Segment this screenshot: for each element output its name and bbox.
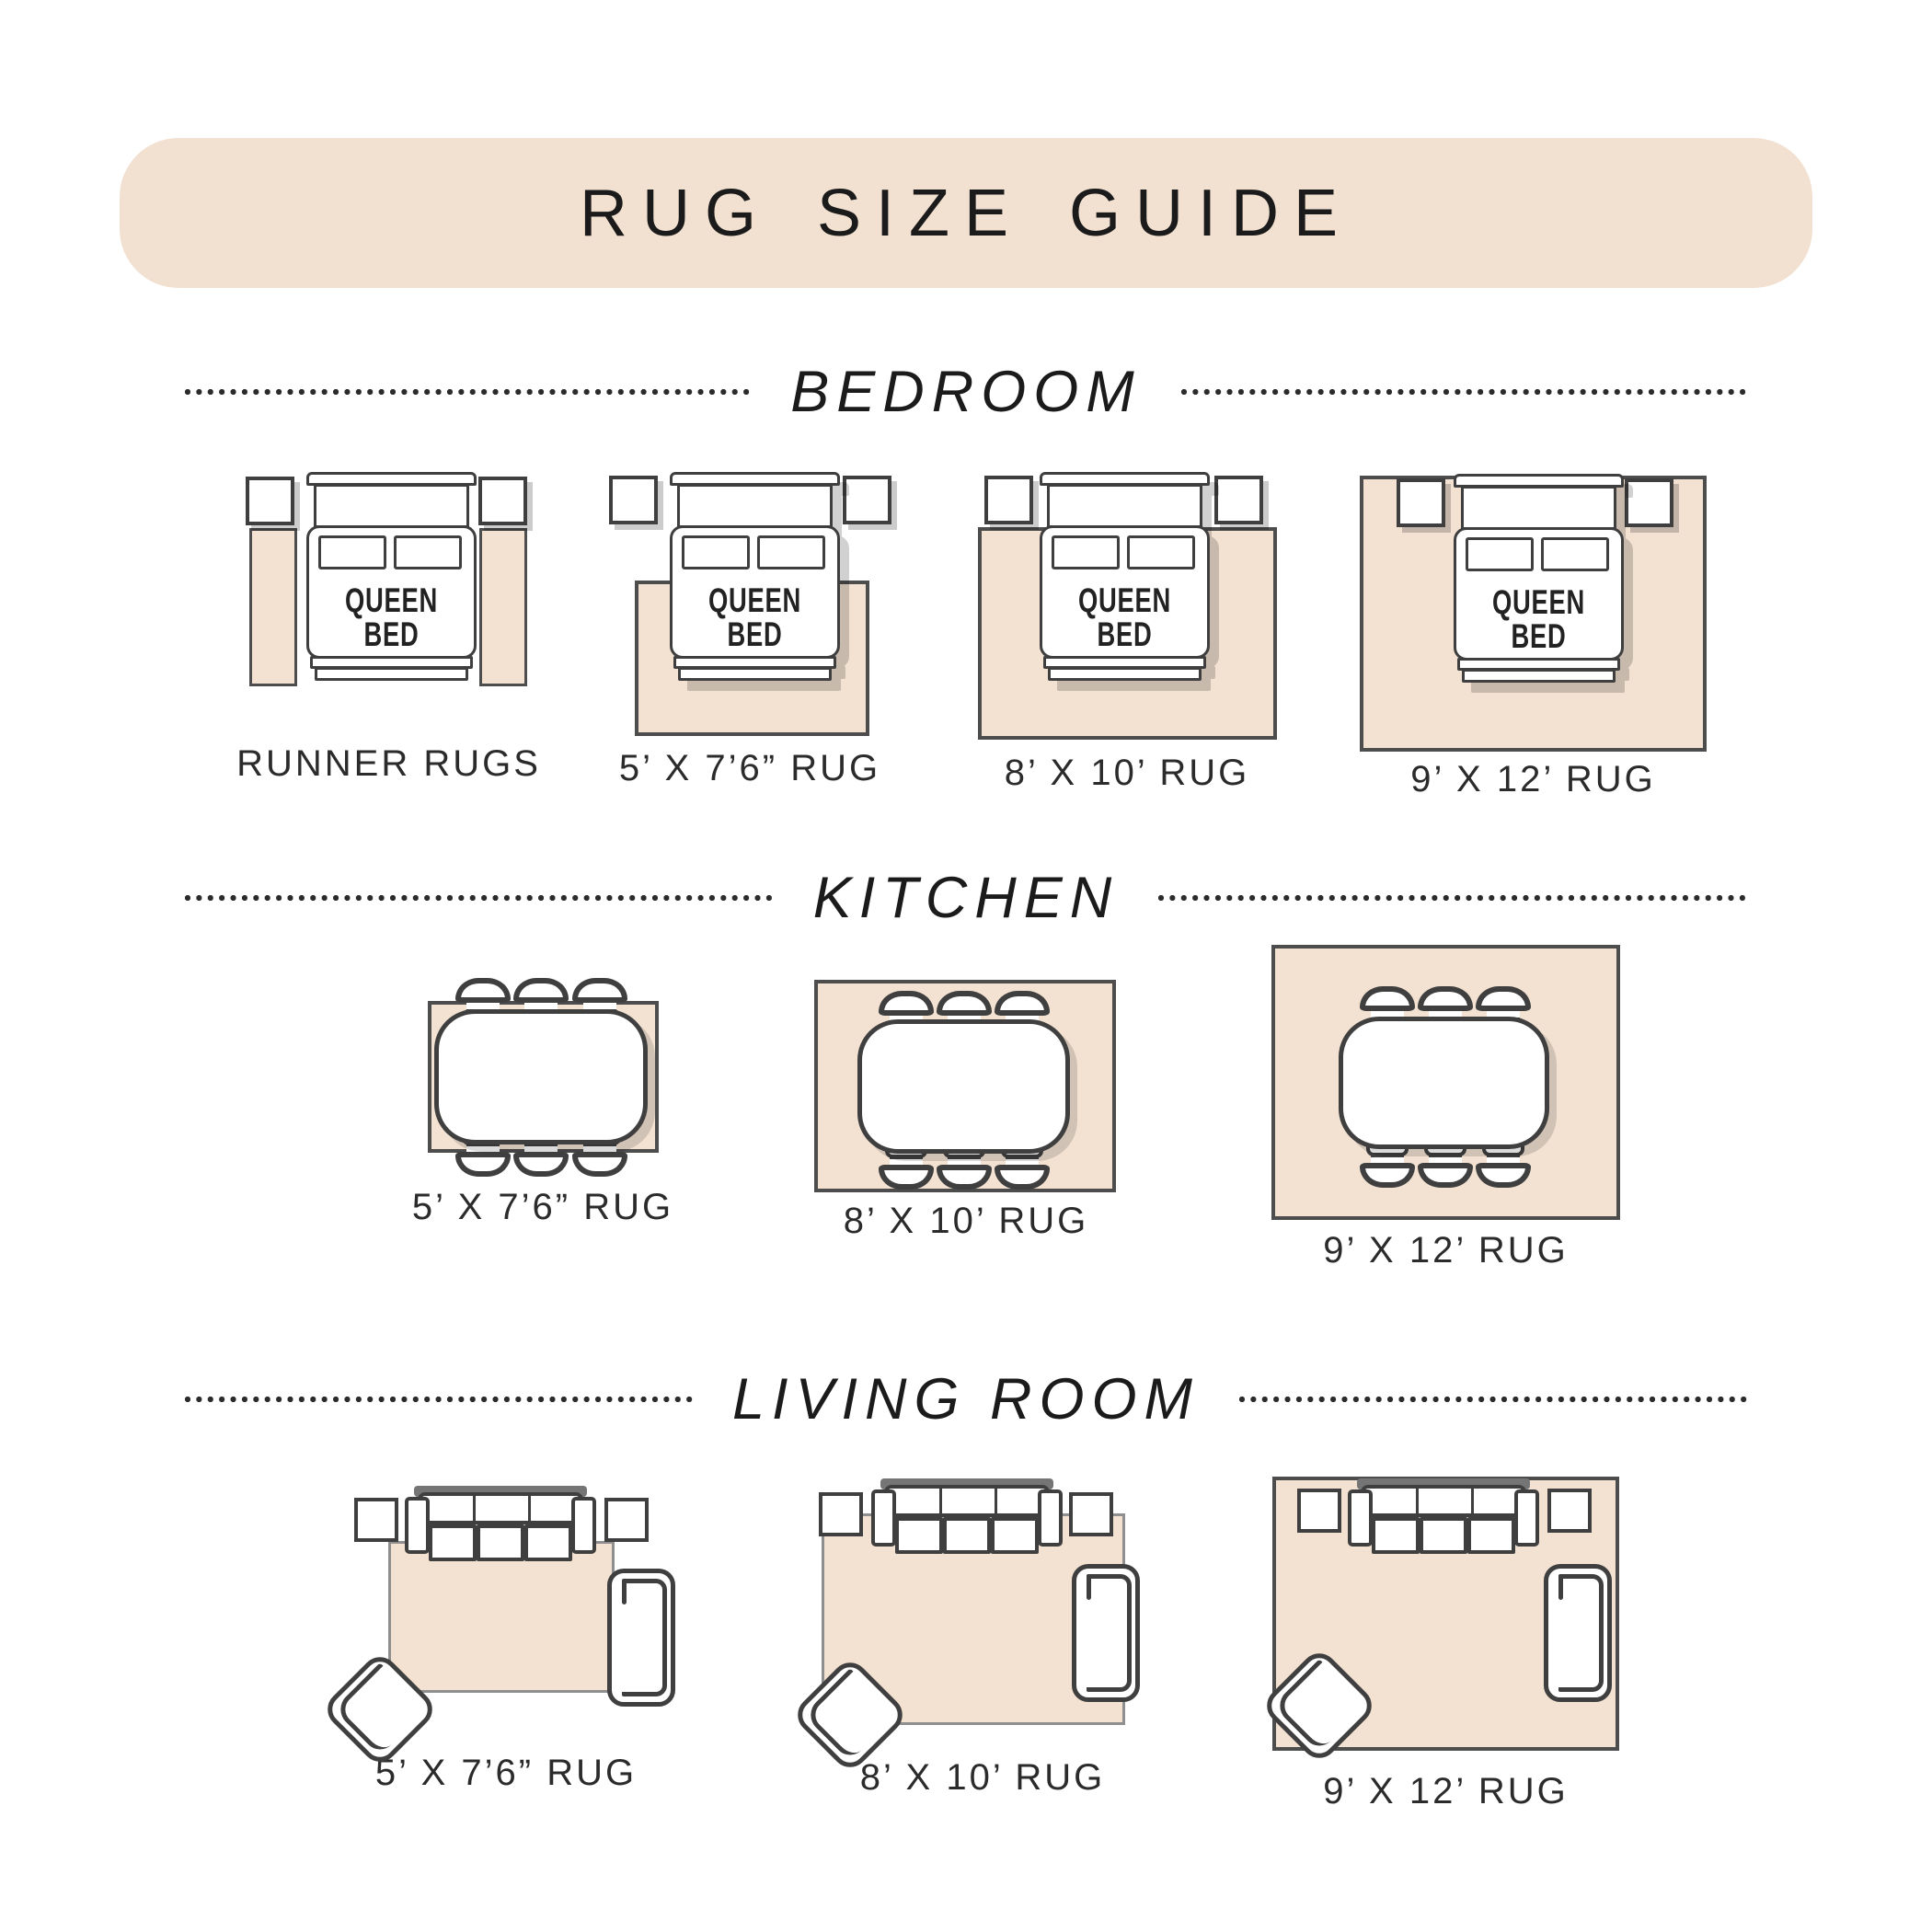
bed-pillow-left <box>682 535 750 569</box>
side-table-left <box>354 1498 398 1542</box>
bedroom-section-header: BEDROOM <box>184 359 1748 425</box>
sofa-cushion <box>429 1524 477 1561</box>
bed-mattress-top <box>1047 484 1202 528</box>
sofa-arm-left <box>871 1489 896 1547</box>
dotted-divider-right <box>1157 894 1748 902</box>
bed-duvet: QUEEN BED <box>1454 527 1624 661</box>
living-room-heading: LIVING ROOM <box>732 1366 1200 1432</box>
dining-table <box>857 1019 1070 1154</box>
bedroom-runner-rugs-diagram: QUEEN BED RUNNER RUGS <box>230 472 547 785</box>
bed-pillow-left <box>1052 535 1120 569</box>
bed-label: QUEEN BED <box>1478 585 1599 653</box>
dining-table <box>434 1009 648 1144</box>
sofa <box>1348 1478 1539 1554</box>
kitchen-5x76-diagram: 5’ X 7’6” RUG <box>414 971 672 1228</box>
bed-duvet: QUEEN BED <box>670 525 840 659</box>
lounge-chair-back <box>1558 1574 1604 1692</box>
diagram-label: 5’ X 7’6” RUG <box>377 1187 708 1228</box>
rug-5x76 <box>388 1541 615 1693</box>
bedroom-8x10-diagram: QUEEN BED 8’ X 10’ RUG <box>975 472 1279 794</box>
chair-back-icon <box>513 1152 569 1177</box>
chair-back-icon <box>513 978 569 1003</box>
lounge-chair-back-end <box>1558 1574 1563 1600</box>
bed-pillow-right <box>1127 535 1195 569</box>
living-room-9x12-diagram: 9’ X 12’ RUG <box>1272 1472 1619 1812</box>
page-title: RUG SIZE GUIDE <box>580 176 1352 251</box>
bed-pillow-left <box>318 535 386 569</box>
chair-back-icon <box>937 1165 992 1190</box>
living-room-8x10-diagram: 8’ X 10’ RUG <box>808 1472 1157 1799</box>
queen-bed: QUEEN BED <box>670 472 840 681</box>
bed-mattress-top <box>1461 486 1616 530</box>
bedroom-heading: BEDROOM <box>790 359 1142 425</box>
chair-back-icon <box>1476 1163 1531 1188</box>
sofa-back-divider <box>528 1496 531 1521</box>
bed-foot-band <box>1462 669 1616 683</box>
chair-back-icon <box>995 1165 1050 1190</box>
bed-mattress-top <box>677 484 833 528</box>
diagram-label: 8’ X 10’ RUG <box>938 753 1316 794</box>
kitchen-9x12-diagram: 9’ X 12’ RUG <box>1271 945 1620 1271</box>
sofa-back-divider <box>473 1496 476 1521</box>
sofa-back <box>418 1492 583 1524</box>
chair-back-icon <box>1360 986 1415 1011</box>
lounge-chair <box>1072 1564 1140 1702</box>
sofa-back <box>1361 1485 1526 1517</box>
chair-back-icon <box>1360 1163 1415 1188</box>
chair-back-icon <box>879 991 934 1016</box>
bed-label: QUEEN BED <box>694 583 815 651</box>
diagram-label: 9’ X 12’ RUG <box>1323 759 1743 800</box>
sofa-arm-right <box>1038 1489 1063 1547</box>
chair-back-icon <box>455 1152 511 1177</box>
side-table-left <box>1297 1489 1341 1533</box>
diagram-label: 5’ X 7’6” RUG <box>294 1753 718 1794</box>
nightstand-right <box>843 476 891 524</box>
bed-duvet: QUEEN BED <box>306 525 477 659</box>
bed-foot-band <box>678 667 832 681</box>
nightstand-left <box>1397 478 1445 527</box>
sofa-back <box>884 1485 1050 1517</box>
lounge-chair <box>1544 1564 1612 1702</box>
queen-bed: QUEEN BED <box>1454 474 1624 683</box>
living-room-section-header: LIVING ROOM <box>184 1366 1748 1432</box>
sofa <box>871 1478 1063 1554</box>
chair-back-icon <box>572 1152 627 1177</box>
bed-label: QUEEN BED <box>330 583 452 651</box>
living-room-5x76-diagram: 5’ X 7’6” RUG <box>331 1472 681 1794</box>
bed-pillow-right <box>394 535 462 569</box>
sofa-arm-right <box>1514 1489 1539 1547</box>
sofa-cushion <box>477 1524 524 1561</box>
sofa-cushion <box>1372 1517 1420 1554</box>
bedroom-9x12-diagram: QUEEN BED 9’ X 12’ RUG <box>1360 465 1707 800</box>
dotted-divider-right <box>1238 1396 1748 1403</box>
sofa-cushion <box>524 1524 572 1561</box>
diagram-label: 8’ X 10’ RUG <box>771 1757 1194 1799</box>
title-banner: RUG SIZE GUIDE <box>120 138 1812 288</box>
lounge-chair <box>607 1569 675 1707</box>
bed-pillow-right <box>757 535 825 569</box>
sofa-cushion <box>991 1517 1039 1554</box>
lounge-chair-back-end <box>622 1579 627 1604</box>
sofa-back-divider <box>995 1489 997 1513</box>
sofa-arm-left <box>1348 1489 1373 1547</box>
runner-rug-left <box>249 528 297 686</box>
dotted-divider-right <box>1180 388 1748 396</box>
chair-back-icon <box>1476 986 1531 1011</box>
runner-rug-right <box>479 528 527 686</box>
chair-back-icon <box>1418 1163 1473 1188</box>
queen-bed: QUEEN BED <box>306 472 477 681</box>
sofa-cushion <box>895 1517 943 1554</box>
kitchen-section-header: KITCHEN <box>184 865 1748 931</box>
chair-back-icon <box>879 1165 934 1190</box>
chair-back-icon <box>455 978 511 1003</box>
rug-size-guide-poster: RUG SIZE GUIDE BEDROOM QUEEN BED RUNNER … <box>0 0 1932 1932</box>
dotted-divider-left <box>184 388 752 396</box>
bed-foot-band <box>315 667 468 681</box>
dotted-divider-left <box>184 1396 694 1403</box>
side-table-left <box>819 1492 863 1536</box>
side-table-right <box>1069 1492 1113 1536</box>
bed-pillow-left <box>1466 537 1534 571</box>
sofa-arm-left <box>405 1497 430 1554</box>
kitchen-heading: KITCHEN <box>813 865 1120 931</box>
diagram-label: 5’ X 7’6” RUG <box>566 748 934 789</box>
sofa-arm-right <box>571 1497 596 1554</box>
sofa-back-divider <box>1416 1489 1419 1513</box>
sofa <box>405 1486 596 1561</box>
diagram-label: 8’ X 10’ RUG <box>773 1201 1159 1242</box>
side-table-right <box>1547 1489 1592 1533</box>
bed-duvet: QUEEN BED <box>1040 525 1210 659</box>
kitchen-8x10-diagram: 8’ X 10’ RUG <box>810 971 1122 1242</box>
sofa-cushion <box>1467 1517 1515 1554</box>
lounge-chair-back-end <box>1087 1574 1091 1600</box>
bed-mattress-top <box>314 484 469 528</box>
sofa-cushion <box>1420 1517 1467 1554</box>
chair-back-icon <box>572 978 627 1003</box>
lounge-chair-back <box>622 1579 667 1696</box>
queen-bed: QUEEN BED <box>1040 472 1210 681</box>
nightstand-right <box>1625 478 1673 527</box>
side-table-right <box>604 1498 649 1542</box>
dotted-divider-left <box>184 894 775 902</box>
sofa-back-divider <box>1471 1489 1474 1513</box>
nightstand-left <box>609 476 658 524</box>
bed-pillow-right <box>1541 537 1609 571</box>
dining-table <box>1339 1017 1549 1149</box>
nightstand-right <box>1214 476 1263 524</box>
lounge-chair-back <box>1087 1574 1132 1692</box>
sofa-back-divider <box>939 1489 942 1513</box>
diagram-label: RUNNER RUGS <box>193 743 584 785</box>
bed-label: QUEEN BED <box>1064 583 1185 651</box>
chair-back-icon <box>937 991 992 1016</box>
bedroom-5x76-diagram: QUEEN BED 5’ X 7’6” RUG <box>603 472 897 789</box>
diagram-label: 9’ X 12’ RUG <box>1236 1771 1656 1812</box>
chair-back-icon <box>995 991 1050 1016</box>
bed-foot-band <box>1048 667 1202 681</box>
nightstand-left <box>984 476 1033 524</box>
nightstand-left <box>246 477 294 525</box>
diagram-label: 9’ X 12’ RUG <box>1235 1230 1657 1271</box>
sofa-cushion <box>943 1517 991 1554</box>
nightstand-right <box>478 477 527 525</box>
chair-back-icon <box>1418 986 1473 1011</box>
